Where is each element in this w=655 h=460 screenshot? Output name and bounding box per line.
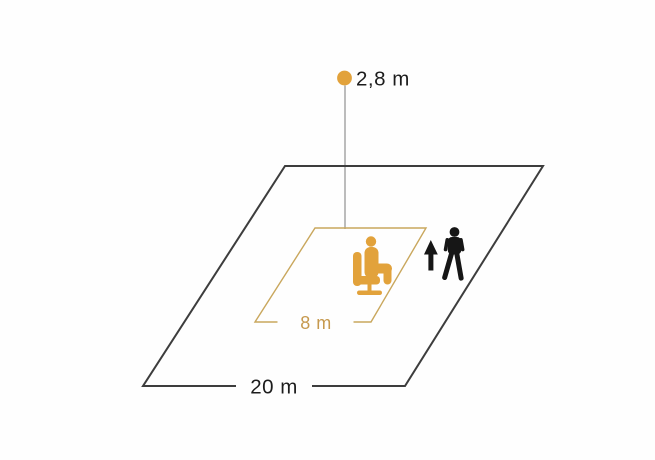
walking-person-back-leg bbox=[454, 252, 464, 281]
detection-range-diagram: 2,8 m 8 m 20 m bbox=[0, 0, 655, 460]
walking-person-head bbox=[450, 227, 460, 237]
outer-detection-zone bbox=[143, 166, 543, 386]
walking-person-icon bbox=[442, 227, 465, 281]
chair-seat bbox=[353, 276, 380, 285]
seated-person-shin bbox=[384, 266, 392, 285]
walking-person-front-leg bbox=[442, 251, 455, 280]
sensor-height-label: 2,8 m bbox=[356, 68, 410, 91]
inner-zone-label: 8 m bbox=[300, 313, 332, 333]
up-arrow-icon bbox=[424, 240, 438, 271]
sensor-dot-icon bbox=[337, 71, 352, 86]
outer-zone-label: 20 m bbox=[250, 376, 298, 399]
chair-base bbox=[357, 291, 382, 296]
seated-person-icon bbox=[353, 236, 392, 295]
inner-detection-zone bbox=[255, 228, 426, 322]
seated-person-head bbox=[366, 236, 376, 246]
